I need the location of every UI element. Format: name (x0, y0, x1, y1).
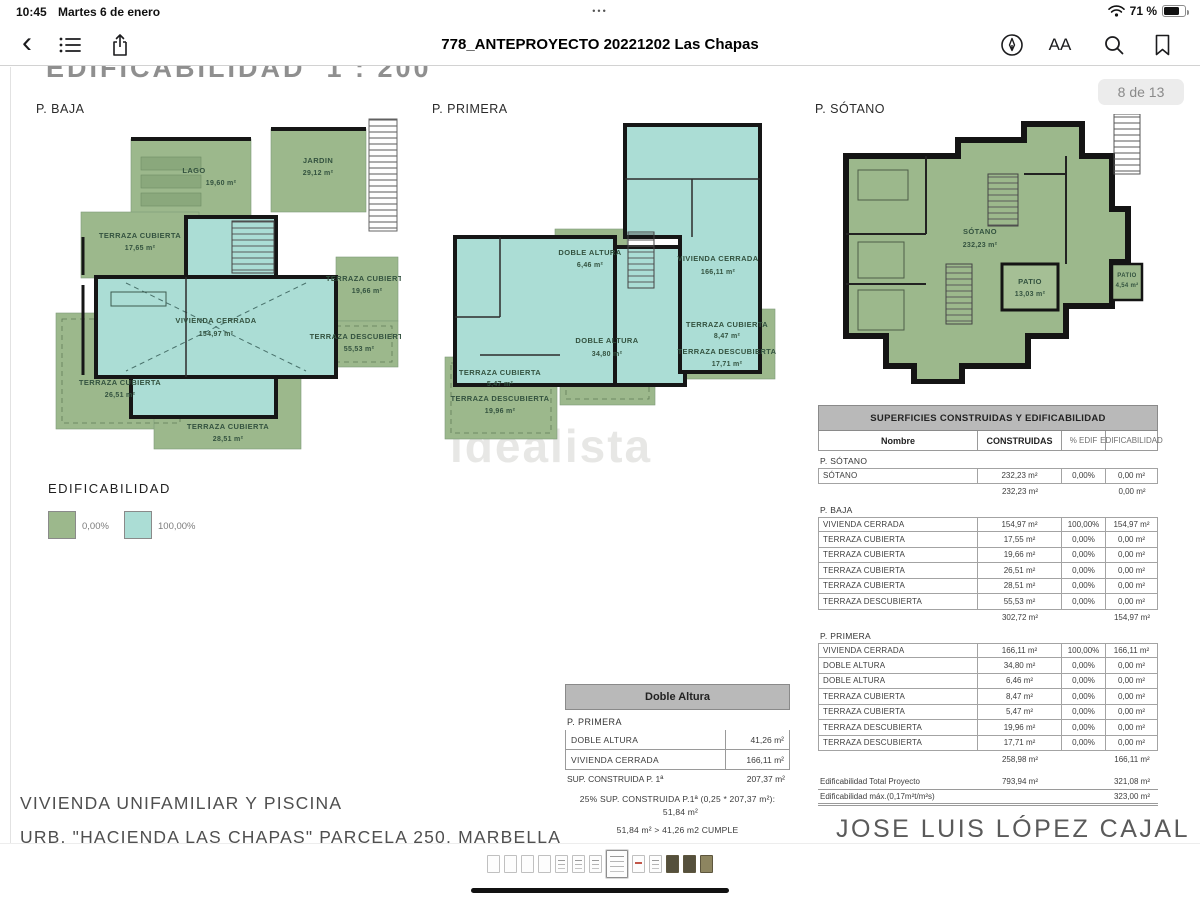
table-cell: 17,55 m² (978, 532, 1062, 548)
area-value: 17,65 m² (125, 245, 156, 252)
table-cell: 0,00% (1062, 548, 1106, 564)
area-label: VIVIENDA CERRADA (175, 316, 256, 325)
area-label: TERRAZA CUBIERTA (686, 320, 768, 329)
area-label: LAGO (182, 166, 205, 175)
project-title: VIVIENDA UNIFAMILIAR Y PISCINA (20, 793, 342, 814)
table-cell: 17,71 m² (978, 736, 1062, 752)
table-cell: 0,00 m² (1106, 594, 1158, 610)
section-label: P. BAJA (818, 500, 1158, 517)
section-label: P. PRIMERA (818, 626, 1158, 643)
table-row: TERRAZA CUBIERTA5,47 m²0,00%0,00 m² (818, 705, 1158, 721)
doble-altura-title: Doble Altura (565, 684, 790, 710)
area-value: 34,80 m² (592, 351, 623, 358)
table-cell: 100,00% (1062, 643, 1106, 659)
floor-plan-primera: DOBLE ALTURA 6,46 m² VIVIENDA CERRADA 16… (440, 117, 790, 447)
thumbnail-page[interactable] (487, 855, 500, 873)
table-cell: 166,11 m² (978, 643, 1062, 659)
table-cell: 34,80 m² (978, 658, 1062, 674)
table-cell: TERRAZA DESCUBIERTA (818, 736, 978, 752)
table-cell: 8,47 m² (978, 689, 1062, 705)
thumbnail-page[interactable] (538, 855, 551, 873)
table-cell: 0,00% (1062, 563, 1106, 579)
page-number-badge: 8 de 13 (1098, 79, 1184, 105)
note-line-1: 25% SUP. CONSTRUIDA P.1ª (0,25 * 207,37 … (565, 793, 790, 819)
total-row: Edificabilidad máx.(0,17m²t/m²s)323,00 m… (818, 789, 1158, 806)
total-construidas: 793,94 m² (978, 773, 1062, 789)
table-cell: 100,00% (1062, 517, 1106, 533)
area-value: 232,23 m² (963, 242, 998, 249)
area-value: 8,47 m² (714, 333, 741, 340)
row-value: 166,11 m² (725, 750, 789, 769)
table-cell: 166,11 m² (1106, 751, 1158, 767)
area-label: TERRAZA DESCUBIERTA (678, 347, 777, 356)
total-edificabilidad: 323,00 m² (1106, 790, 1158, 803)
table-row: TERRAZA DESCUBIERTA17,71 m²0,00%0,00 m² (818, 736, 1158, 752)
subtotal-row: 258,98 m²166,11 m² (818, 751, 1158, 767)
area-value: 6,46 m² (577, 262, 604, 269)
area-label: PATIO (1018, 277, 1042, 286)
table-cell (1062, 773, 1106, 789)
area-label: VIVIENDA CERRADA (677, 254, 758, 263)
sum-label: SUP. CONSTRUIDA P. 1ª (565, 774, 726, 784)
table-cell: 154,97 m² (1106, 610, 1158, 626)
area-label: TERRAZA CUBIERTA (99, 231, 181, 240)
pdf-page[interactable]: EDIFICABILIDAD 1 : 200 8 de 13 idealista… (0, 67, 1200, 899)
table-cell: 0,00% (1062, 532, 1106, 548)
table-cell: 55,53 m² (978, 594, 1062, 610)
table-row: TERRAZA CUBIERTA26,51 m²0,00%0,00 m² (818, 563, 1158, 579)
note1-value: 51,84 m² (663, 807, 698, 817)
area-value: 166,11 m² (701, 269, 736, 276)
table-cell: 0,00 m² (1106, 579, 1158, 595)
search-icon (1103, 34, 1125, 56)
battery-icon (1162, 5, 1186, 17)
table-cell: TERRAZA CUBIERTA (818, 563, 978, 579)
table-cell: 19,96 m² (978, 720, 1062, 736)
area-label: TERRAZA DESCUBIERTA (310, 332, 401, 341)
column-header: CONSTRUIDAS (978, 431, 1062, 451)
table-cell: 0,00 m² (1106, 468, 1158, 484)
doble-altura-section: P. PRIMERA (567, 717, 790, 727)
pdf-toolbar: ‹ 778_ANTEPROYECTO 20221202 Las Chapas (0, 24, 1200, 66)
multitask-dots-icon: ••• (0, 6, 1200, 16)
table-cell: TERRAZA CUBIERTA (818, 579, 978, 595)
table-cell: VIVIENDA CERRADA (818, 643, 978, 659)
area-value: 5,47 m² (487, 381, 514, 388)
home-indicator[interactable] (471, 888, 729, 893)
table-cell: DOBLE ALTURA (818, 658, 978, 674)
sum-value: 207,37 m² (726, 774, 790, 784)
area-label: TERRAZA CUBIERTA (79, 378, 161, 387)
thumbnail-page[interactable] (555, 855, 568, 873)
table-cell (1062, 751, 1106, 767)
column-header: EDIFICABILIDAD (1106, 431, 1158, 451)
area-label: DOBLE ALTURA (558, 248, 621, 257)
thumbnail-page[interactable] (521, 855, 534, 873)
table-row: SÓTANO232,23 m²0,00%0,00 m² (818, 468, 1158, 484)
bookmark-button[interactable] (1144, 24, 1180, 66)
table-cell: 0,00 m² (1106, 532, 1158, 548)
area-label: TERRAZA DESCUBIERTA (451, 394, 550, 403)
table-cell: 0,00% (1062, 736, 1106, 752)
ipad-pdf-viewer: 10:45 Martes 6 de enero ••• 71 % ‹ (0, 0, 1200, 899)
area-label: TERRAZA CUBIERTA (459, 368, 541, 377)
total-label: Edificabilidad máx.(0,17m²t/m²s) (818, 790, 978, 803)
area-value: 13,03 m² (1015, 291, 1046, 298)
table-cell (818, 610, 978, 626)
table-row: TERRAZA CUBIERTA17,55 m²0,00%0,00 m² (818, 532, 1158, 548)
plan-label-baja: P. BAJA (36, 102, 84, 116)
thumbnail-page[interactable] (666, 855, 679, 873)
table-row: TERRAZA CUBIERTA28,51 m²0,00%0,00 m² (818, 579, 1158, 595)
table-cell: 0,00% (1062, 689, 1106, 705)
table-row: VIVIENDA CERRADA166,11 m²100,00%166,11 m… (818, 643, 1158, 659)
surfaces-table-columns: Nombre CONSTRUIDAS % EDIF EDIFICABILIDAD (818, 431, 1158, 451)
section-label: P. SÓTANO (818, 451, 1158, 468)
table-cell (1062, 790, 1106, 803)
doble-altura-table: Doble Altura P. PRIMERA DOBLE ALTURA 41,… (565, 684, 790, 837)
legend-label-0: 0,00% (82, 521, 109, 532)
row-name: VIVIENDA CERRADA (566, 755, 725, 765)
table-cell: TERRAZA CUBIERTA (818, 532, 978, 548)
table-cell: 0,00 m² (1106, 563, 1158, 579)
area-label: DOBLE ALTURA (575, 336, 638, 345)
floor-plan-sotano: SÓTANO 232,23 m² PATIO 13,03 m² PATIO 4,… (830, 114, 1150, 384)
table-row: TERRAZA DESCUBIERTA19,96 m²0,00%0,00 m² (818, 720, 1158, 736)
surfaces-table-body: P. SÓTANOSÓTANO232,23 m²0,00%0,00 m²232,… (818, 451, 1158, 806)
plan-label-primera: P. PRIMERA (432, 102, 508, 116)
area-value: 19,60 m² (206, 180, 237, 187)
table-cell: 0,00% (1062, 705, 1106, 721)
table-cell (818, 484, 978, 500)
thumbnail-page[interactable] (632, 855, 645, 873)
markup-pen-icon (1000, 33, 1024, 57)
legend-title: EDIFICABILIDAD (48, 481, 171, 496)
table-cell: 0,00 m² (1106, 658, 1158, 674)
table-cell: 0,00 m² (1106, 705, 1158, 721)
row-value: 41,26 m² (725, 730, 789, 749)
legend-label-100: 100,00% (158, 521, 196, 532)
area-label: PATIO (1117, 273, 1136, 279)
thumbnail-page[interactable] (589, 855, 602, 873)
area-label: TERRAZA CUBIERTA (326, 274, 401, 283)
note1-text: 25% SUP. CONSTRUIDA P.1ª (0,25 * 207,37 … (580, 794, 775, 804)
area-value: 55,53 m² (344, 346, 375, 353)
page-thumbnail-strip[interactable] (0, 850, 1200, 878)
table-cell: 0,00 m² (1106, 674, 1158, 690)
table-cell: 6,46 m² (978, 674, 1062, 690)
table-cell: 154,97 m² (978, 517, 1062, 533)
table-cell: 232,23 m² (978, 468, 1062, 484)
table-cell: 0,00 m² (1106, 720, 1158, 736)
table-cell: 232,23 m² (978, 484, 1062, 500)
table-cell: SÓTANO (818, 468, 978, 484)
surfaces-table: SUPERFICIES CONSTRUIDAS Y EDIFICABILIDAD… (818, 405, 1158, 806)
bookmark-icon (1154, 34, 1171, 56)
table-cell: 19,66 m² (978, 548, 1062, 564)
page-edge-line (10, 67, 11, 843)
table-cell: 0,00 m² (1106, 548, 1158, 564)
table-cell: 258,98 m² (978, 751, 1062, 767)
area-value: 154,97 m² (199, 331, 234, 338)
table-row: TERRAZA CUBIERTA19,66 m²0,00%0,00 m² (818, 548, 1158, 564)
sum-row: SUP. CONSTRUIDA P. 1ª 207,37 m² (565, 770, 790, 788)
table-cell: 0,00% (1062, 720, 1106, 736)
column-header: Nombre (818, 431, 978, 451)
table-cell: 166,11 m² (1106, 643, 1158, 659)
subtotal-row: 232,23 m²0,00 m² (818, 484, 1158, 500)
total-label: Edificabilidad Total Proyecto (818, 773, 978, 789)
area-value: 29,12 m² (303, 170, 334, 177)
thumbnail-page[interactable] (504, 855, 517, 873)
table-cell: TERRAZA DESCUBIERTA (818, 720, 978, 736)
table-row: VIVIENDA CERRADA 166,11 m² (565, 750, 790, 770)
table-row: DOBLE ALTURA34,80 m²0,00%0,00 m² (818, 658, 1158, 674)
legend-swatch-0 (48, 511, 76, 539)
area-value: 19,96 m² (485, 408, 516, 415)
thumbnail-page[interactable] (700, 855, 713, 873)
area-value: 17,71 m² (712, 361, 743, 368)
total-edificabilidad: 321,08 m² (1106, 773, 1158, 789)
status-bar: 10:45 Martes 6 de enero ••• 71 % (0, 0, 1200, 24)
table-cell: 5,47 m² (978, 705, 1062, 721)
battery-percentage: 71 % (1130, 4, 1157, 18)
area-value: 19,66 m² (352, 288, 383, 295)
table-cell: 0,00% (1062, 468, 1106, 484)
table-cell: 26,51 m² (978, 563, 1062, 579)
floor-plan-baja: JARDIN 29,12 m² LAGO 19,60 m² TERRAZA CU… (36, 117, 401, 452)
table-cell: DOBLE ALTURA (818, 674, 978, 690)
thumbnail-page[interactable] (572, 855, 585, 873)
note-line-2: 51,84 m² > 41,26 m2 CUMPLE (565, 824, 790, 837)
search-button[interactable] (1096, 24, 1132, 66)
area-value: 26,51 m² (105, 392, 136, 399)
table-cell: 0,00% (1062, 658, 1106, 674)
table-cell: TERRAZA CUBIERTA (818, 689, 978, 705)
table-cell: 0,00 m² (1106, 736, 1158, 752)
area-label: TERRAZA CUBIERTA (187, 422, 269, 431)
table-cell: 0,00% (1062, 674, 1106, 690)
text-size-button[interactable]: AA (1040, 24, 1080, 66)
table-cell: 302,72 m² (978, 610, 1062, 626)
table-row: TERRAZA DESCUBIERTA55,53 m²0,00%0,00 m² (818, 594, 1158, 610)
area-label: JARDIN (303, 156, 333, 165)
markup-button[interactable] (994, 24, 1030, 66)
thumbnail-page[interactable] (683, 855, 696, 873)
total-row: Edificabilidad Total Proyecto793,94 m²32… (818, 773, 1158, 789)
subtotal-row: 302,72 m²154,97 m² (818, 610, 1158, 626)
architect-name: JOSE LUIS LÓPEZ CAJAL (836, 815, 1190, 844)
table-cell: 28,51 m² (978, 579, 1062, 595)
thumbnail-current-page[interactable] (606, 850, 628, 878)
table-cell (1062, 610, 1106, 626)
table-cell: TERRAZA CUBIERTA (818, 705, 978, 721)
table-cell: 0,00 m² (1106, 484, 1158, 500)
table-row: VIVIENDA CERRADA154,97 m²100,00%154,97 m… (818, 517, 1158, 533)
table-cell: TERRAZA DESCUBIERTA (818, 594, 978, 610)
legend-swatch-100 (124, 511, 152, 539)
area-value: 4,54 m² (1116, 282, 1139, 289)
total-construidas (978, 790, 1062, 803)
table-cell: VIVIENDA CERRADA (818, 517, 978, 533)
table-cell: TERRAZA CUBIERTA (818, 548, 978, 564)
table-cell: 154,97 m² (1106, 517, 1158, 533)
bottom-bar (0, 843, 1200, 899)
table-row: DOBLE ALTURA 41,26 m² (565, 730, 790, 750)
table-cell: 0,00% (1062, 579, 1106, 595)
surfaces-table-title: SUPERFICIES CONSTRUIDAS Y EDIFICABILIDAD (818, 405, 1158, 431)
text-size-icon: AA (1049, 35, 1072, 55)
table-row: DOBLE ALTURA6,46 m²0,00%0,00 m² (818, 674, 1158, 690)
table-cell (818, 751, 978, 767)
thumbnail-page[interactable] (649, 855, 662, 873)
area-label: SÓTANO (963, 227, 997, 236)
table-row: TERRAZA CUBIERTA8,47 m²0,00%0,00 m² (818, 689, 1158, 705)
table-cell (1062, 484, 1106, 500)
row-name: DOBLE ALTURA (566, 735, 725, 745)
wifi-icon (1108, 5, 1125, 17)
table-cell: 0,00% (1062, 594, 1106, 610)
area-value: 28,51 m² (213, 436, 244, 443)
table-cell: 0,00 m² (1106, 689, 1158, 705)
